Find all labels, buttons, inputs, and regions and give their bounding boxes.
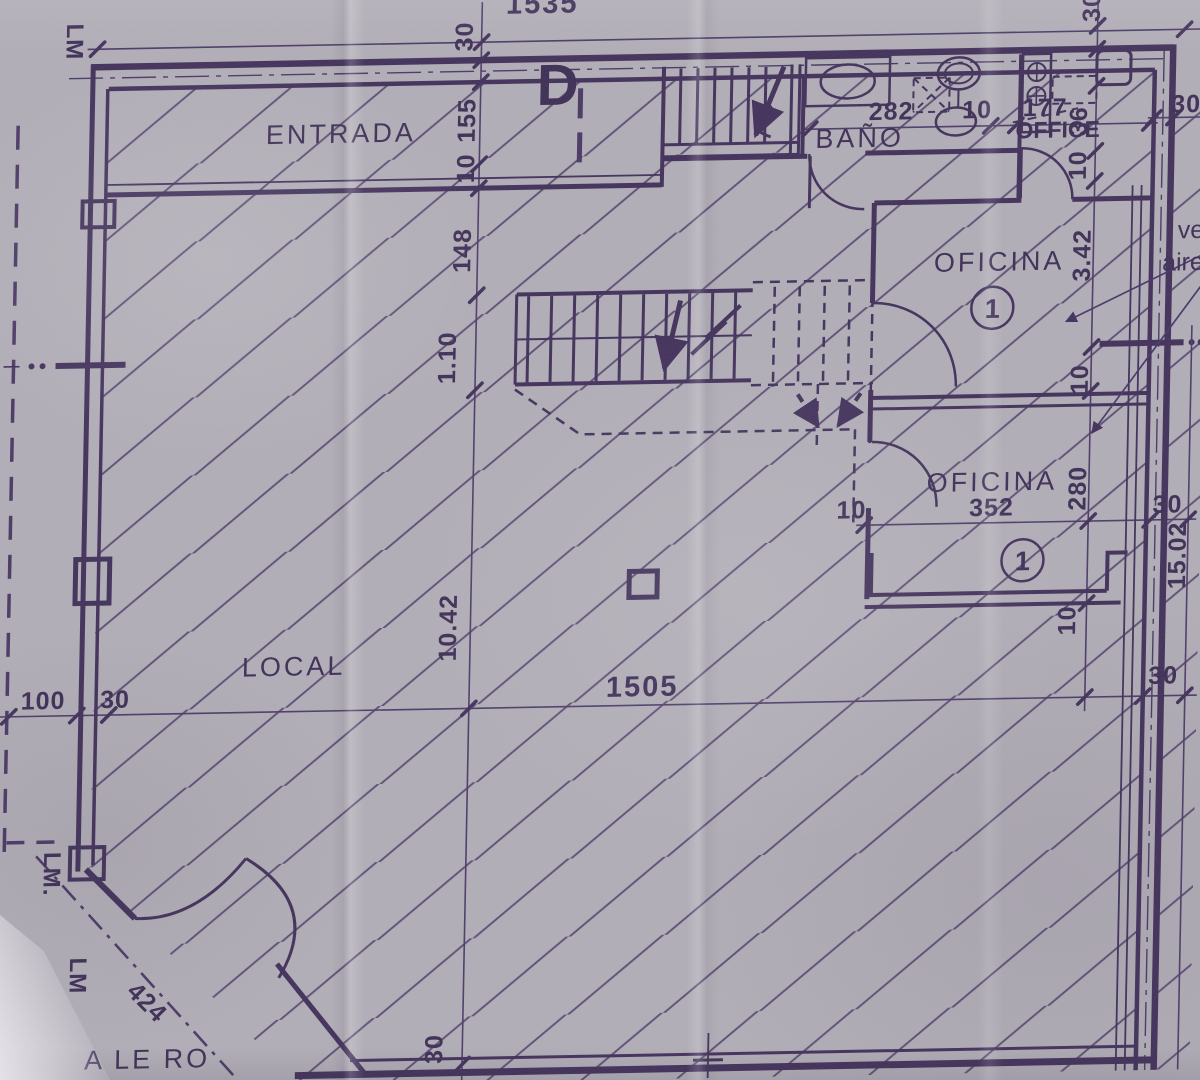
- paper-grain-overlay: [0, 0, 1200, 1080]
- floor-plan-drawing: ENTRADA LOCAL BAÑO OFFICE OFICINA 1 OFIC…: [0, 0, 1200, 1080]
- blueprint-photo: ENTRADA LOCAL BAÑO OFFICE OFICINA 1 OFIC…: [0, 0, 1200, 1080]
